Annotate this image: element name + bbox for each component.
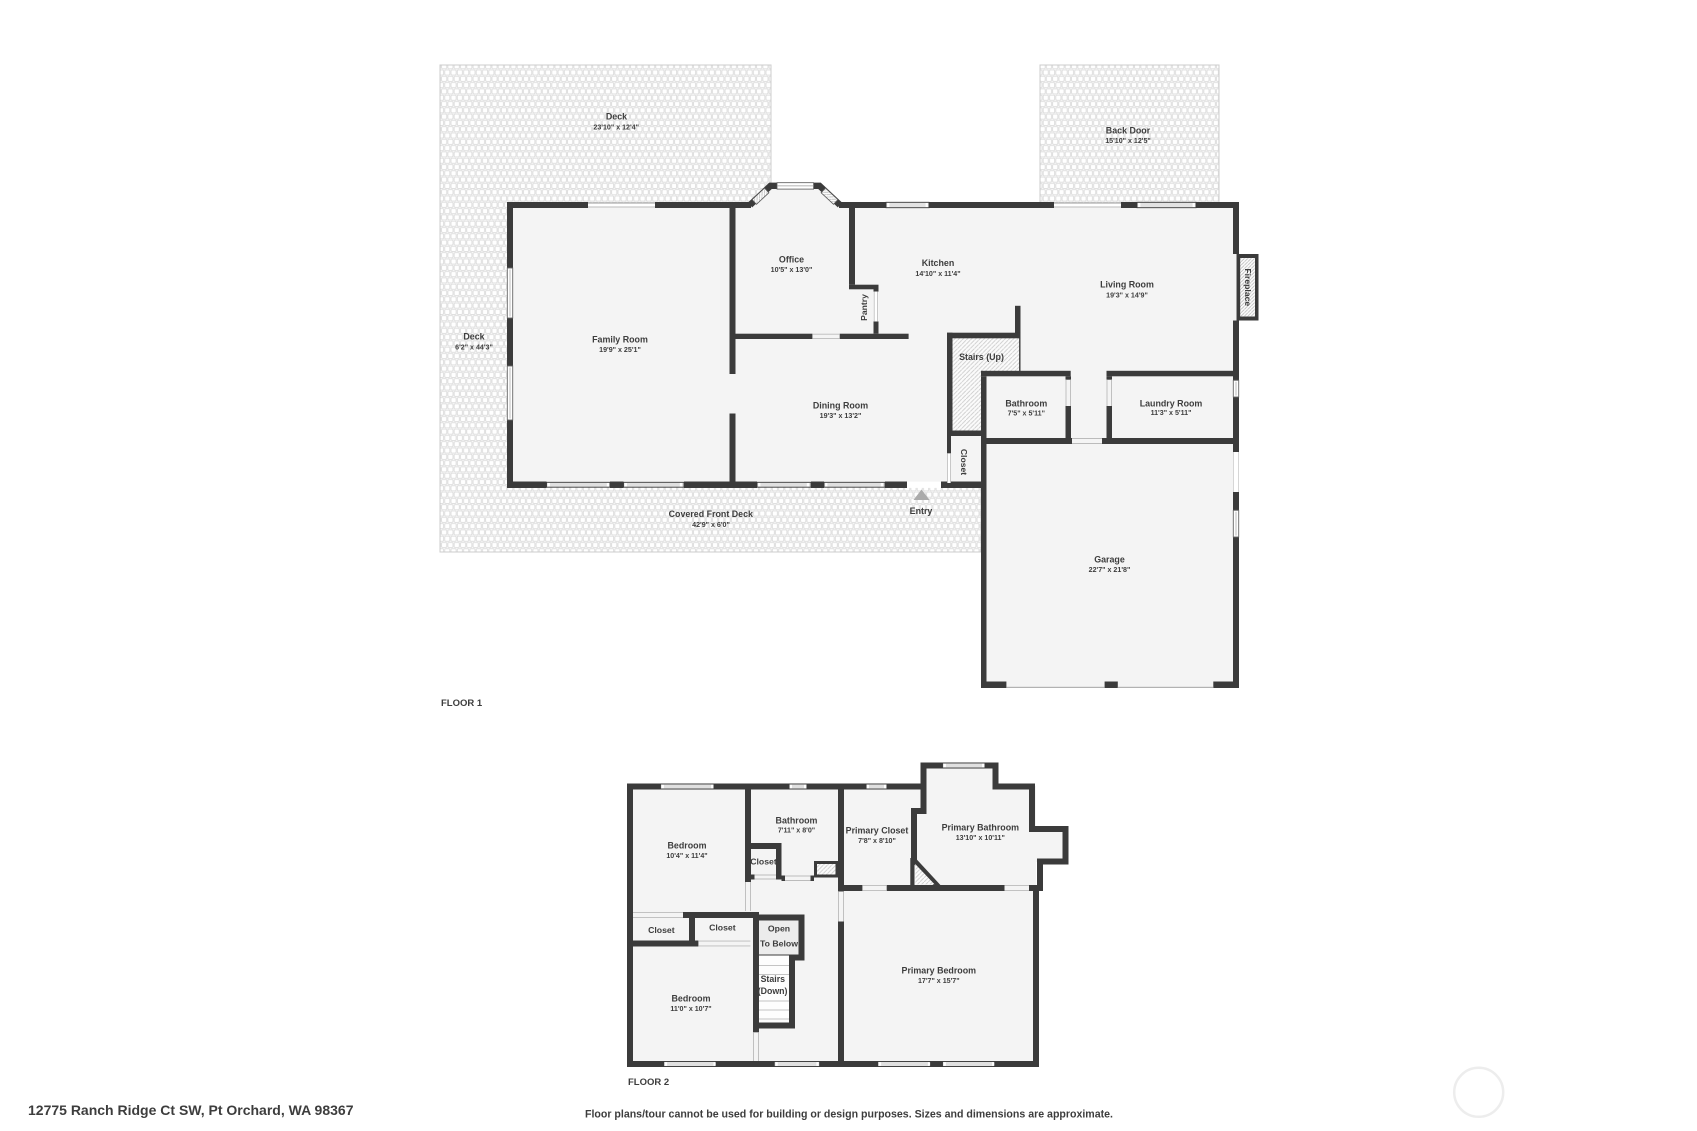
svg-text:Bathroom: Bathroom [776, 815, 818, 825]
svg-text:Back Door: Back Door [1106, 125, 1151, 135]
svg-text:10'4" x 11'4": 10'4" x 11'4" [666, 852, 707, 860]
svg-text:7'11" x 8'0": 7'11" x 8'0" [778, 827, 815, 835]
svg-text:Primary Closet: Primary Closet [846, 825, 909, 835]
svg-text:11'0" x 10'7": 11'0" x 10'7" [670, 1005, 711, 1013]
svg-text:Entry: Entry [910, 506, 933, 516]
svg-text:7'8" x 8'10": 7'8" x 8'10" [858, 837, 896, 845]
svg-text:42'9" x 6'0": 42'9" x 6'0" [692, 521, 730, 529]
svg-text:Office: Office [779, 255, 804, 265]
svg-text:Stairs (Up): Stairs (Up) [959, 352, 1004, 362]
svg-text:6'2" x 44'3": 6'2" x 44'3" [455, 343, 493, 351]
svg-text:19'9" x 25'1": 19'9" x 25'1" [599, 346, 641, 354]
svg-text:13'10" x 10'11": 13'10" x 10'11" [956, 834, 1005, 842]
svg-text:10'5" x 13'0": 10'5" x 13'0" [771, 266, 813, 274]
svg-text:Floor plans/tour cannot be use: Floor plans/tour cannot be used for buil… [585, 1109, 1113, 1121]
svg-text:FLOOR 1: FLOOR 1 [441, 698, 483, 709]
svg-text:19'3" x 14'9": 19'3" x 14'9" [1106, 291, 1148, 299]
svg-text:Primary Bathroom: Primary Bathroom [942, 823, 1020, 833]
svg-text:Bedroom: Bedroom [668, 841, 707, 851]
svg-text:23'10" x 12'4": 23'10" x 12'4" [593, 123, 639, 131]
svg-text:17'7" x 15'7": 17'7" x 15'7" [918, 977, 960, 985]
svg-text:Closet: Closet [750, 856, 777, 866]
svg-text:Dining Room: Dining Room [813, 400, 868, 410]
svg-text:Fireplace: Fireplace [1243, 268, 1253, 306]
svg-text:Bedroom: Bedroom [672, 994, 711, 1004]
svg-text:Deck: Deck [606, 112, 627, 122]
svg-text:Laundry Room: Laundry Room [1140, 398, 1203, 408]
svg-text:Stairs: Stairs [761, 974, 786, 984]
svg-text:Kitchen: Kitchen [922, 258, 955, 268]
svg-text:FLOOR 2: FLOOR 2 [628, 1077, 669, 1088]
svg-text:Family Room: Family Room [592, 334, 648, 344]
svg-text:7'5" x 5'11": 7'5" x 5'11" [1008, 409, 1045, 417]
svg-text:Deck: Deck [463, 332, 484, 342]
svg-text:Closet: Closet [648, 925, 675, 935]
svg-text:14'10" x 11'4": 14'10" x 11'4" [915, 270, 960, 278]
svg-text:Bathroom: Bathroom [1005, 398, 1047, 408]
svg-text:15'10" x 12'5": 15'10" x 12'5" [1105, 137, 1151, 145]
svg-text:Primary Bedroom: Primary Bedroom [902, 966, 977, 976]
svg-text:(Down): (Down) [758, 986, 788, 996]
svg-text:11'3" x 5'11": 11'3" x 5'11" [1151, 409, 1192, 417]
svg-text:12775 Ranch Ridge Ct SW, Pt Or: 12775 Ranch Ridge Ct SW, Pt Orchard, WA … [28, 1102, 354, 1118]
svg-text:Closet: Closet [959, 449, 969, 475]
svg-text:Living Room: Living Room [1100, 279, 1154, 289]
svg-text:Pantry: Pantry [859, 294, 869, 321]
svg-text:Garage: Garage [1094, 554, 1125, 564]
svg-text:To Below: To Below [760, 938, 798, 948]
svg-text:Covered Front Deck: Covered Front Deck [669, 509, 753, 519]
svg-text:Open: Open [768, 924, 790, 934]
svg-text:Closet: Closet [709, 922, 736, 932]
svg-text:19'3" x 13'2": 19'3" x 13'2" [820, 412, 862, 420]
svg-text:22'7" x 21'8": 22'7" x 21'8" [1089, 566, 1131, 574]
